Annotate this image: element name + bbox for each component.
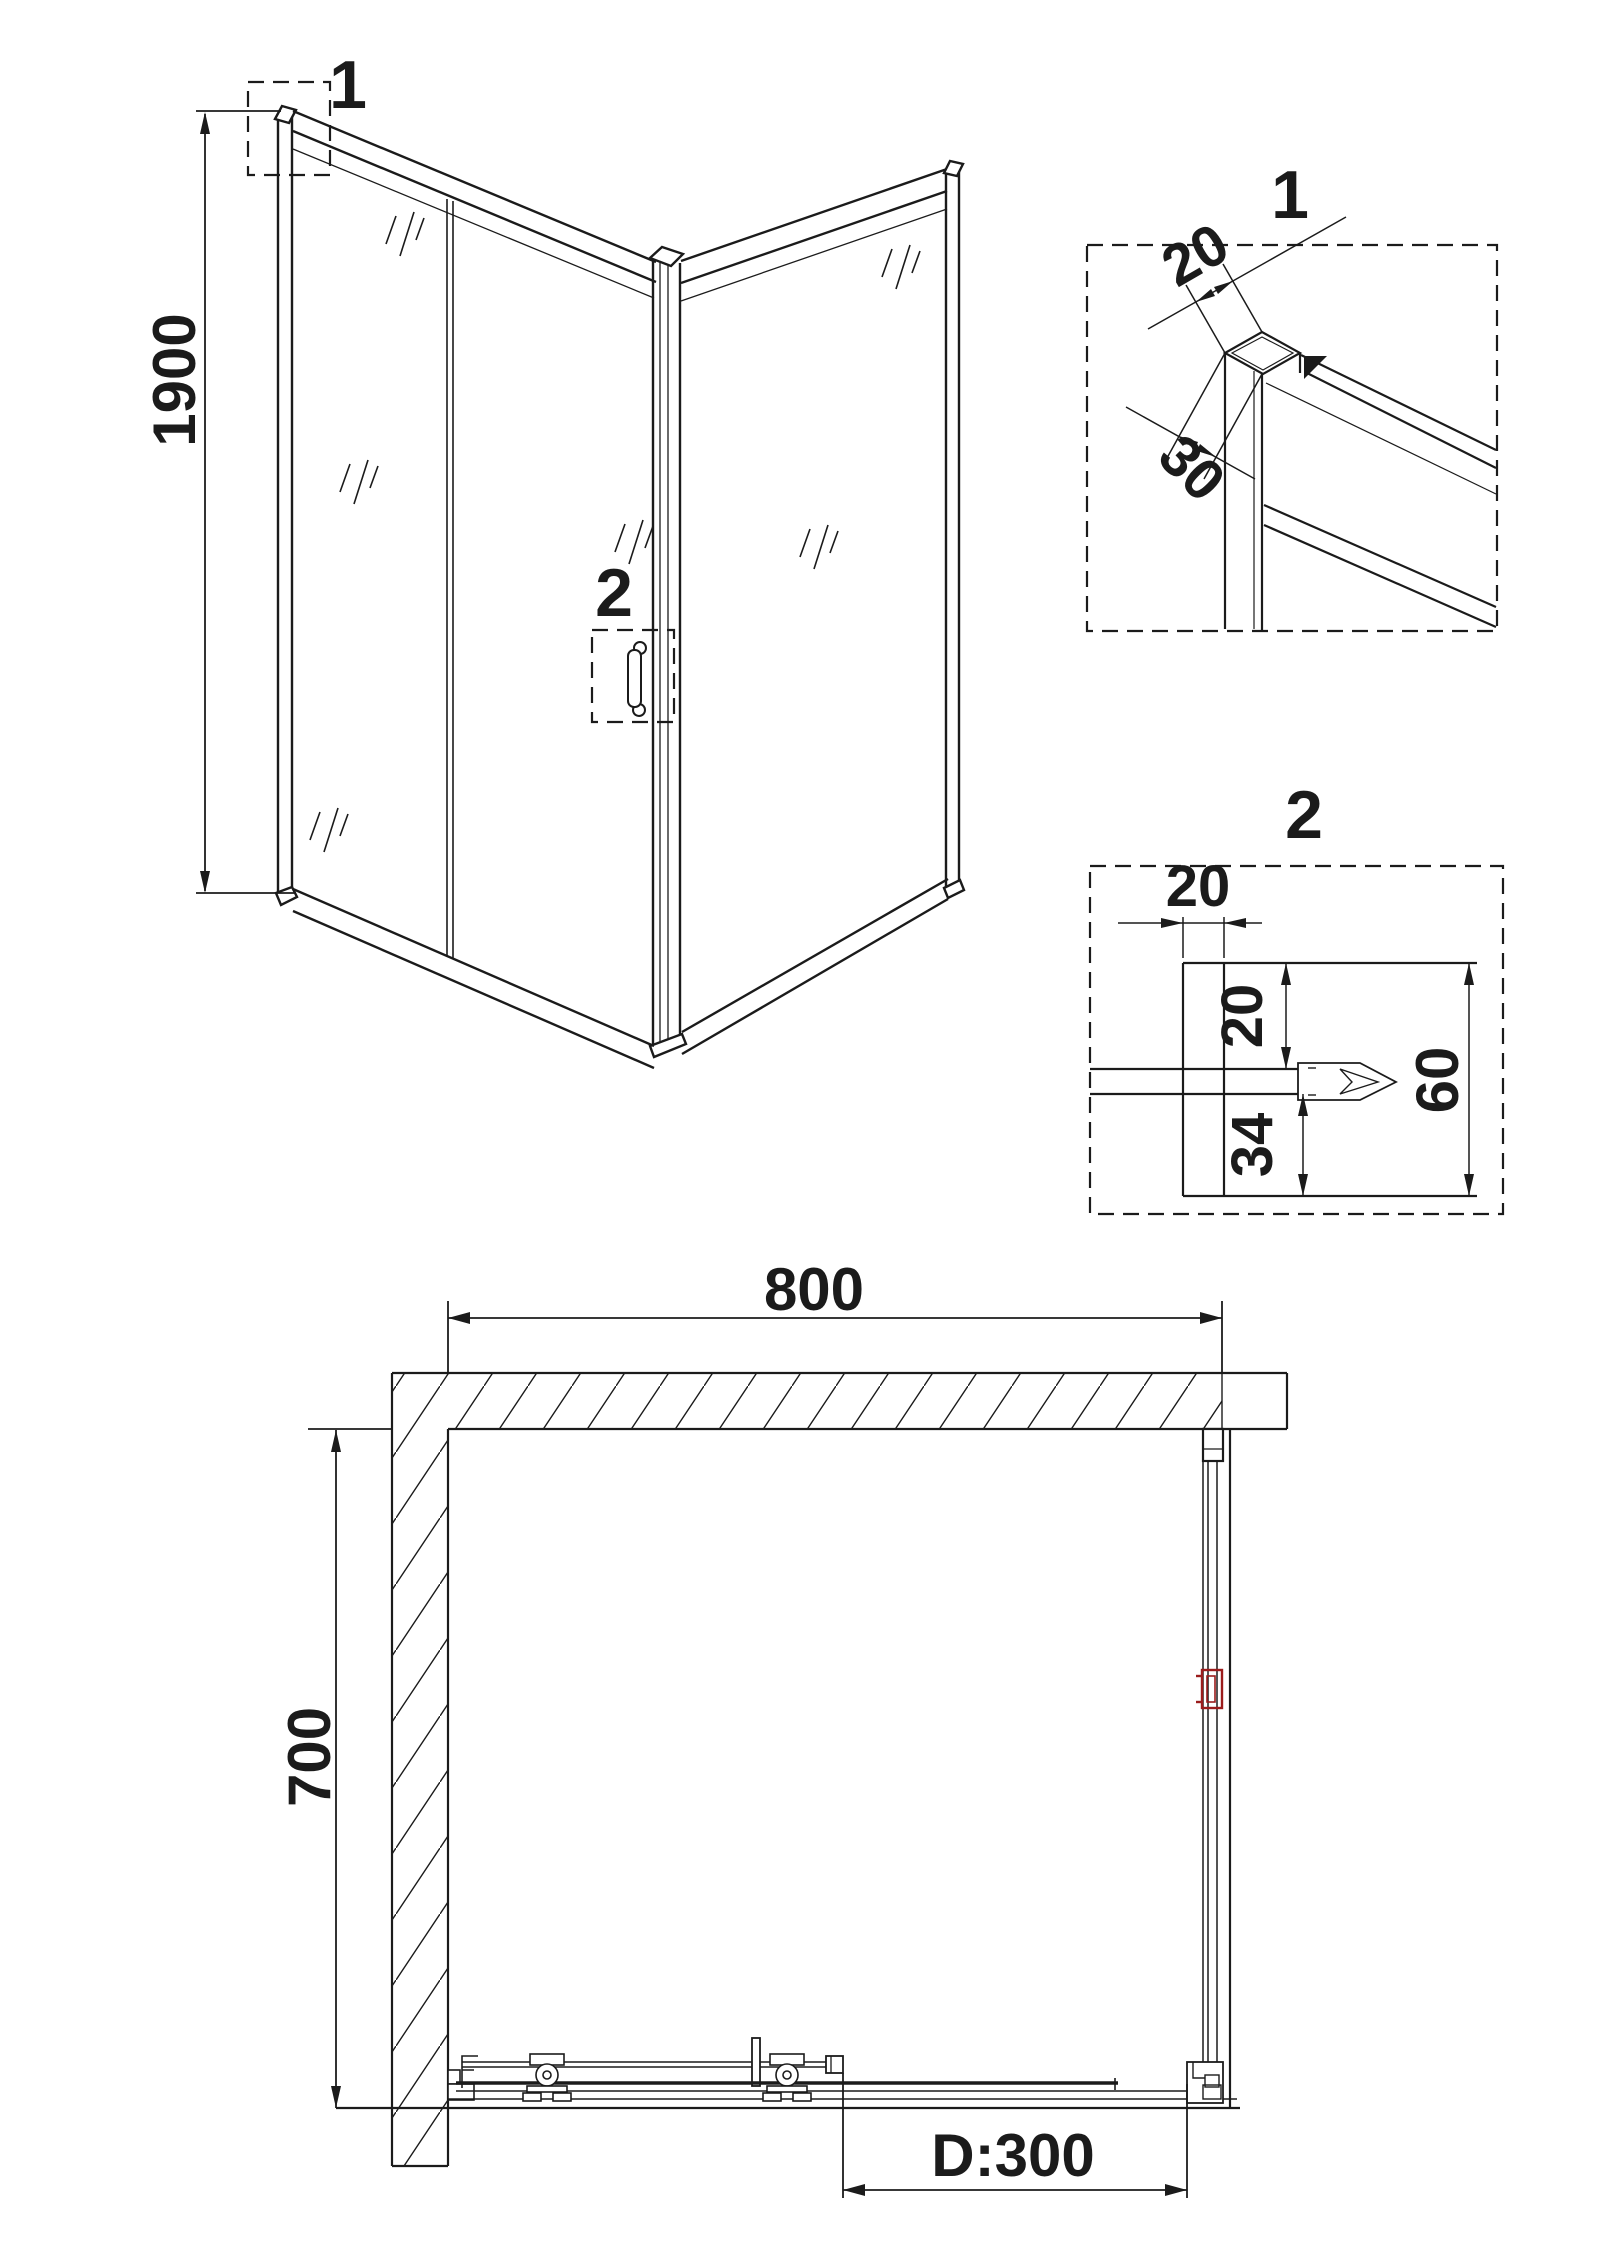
detail-2-overall-dimension: 60 xyxy=(1404,963,1474,1196)
plan-depth-dimension: 700 xyxy=(276,1429,392,2108)
iso-right-post xyxy=(944,161,964,898)
iso-front-top-rail xyxy=(293,111,656,298)
iso-left-post xyxy=(275,106,297,905)
glass-shine-marks xyxy=(310,212,920,852)
plan-depth-dimension-text: 700 xyxy=(276,1707,343,1807)
plan-wall-bracket-red xyxy=(1196,1670,1222,1708)
drawing-canvas: 1 2 1900 1 xyxy=(0,0,1600,2264)
detail-1-depth-dimension: 30 xyxy=(1126,353,1262,514)
plan-walls xyxy=(392,1373,1287,2166)
plan-view: 800 700 xyxy=(276,1256,1287,2198)
callout-2-label: 2 xyxy=(595,555,633,631)
detail-1-view: 1 20 xyxy=(1087,157,1497,631)
detail-2-upper-gap-dimension: 20 xyxy=(1210,963,1291,1069)
iso-front-bottom-rail xyxy=(293,889,654,1068)
callout-1-label: 1 xyxy=(329,47,367,123)
detail-2-view: 2 20 xyxy=(1090,777,1503,1214)
roller-carriage xyxy=(523,2054,571,2101)
iso-door-divider xyxy=(447,199,453,959)
detail-1-depth-dimension-text: 30 xyxy=(1146,422,1238,514)
detail-2-upper-gap-text: 20 xyxy=(1210,984,1275,1049)
plan-corner-bracket xyxy=(1187,2062,1223,2103)
detail-2-profile-width-text: 20 xyxy=(1166,854,1231,919)
iso-right-top-rail xyxy=(681,169,947,301)
detail-2-lower-gap-text: 34 xyxy=(1220,1113,1285,1178)
detail-1-rails xyxy=(1264,355,1496,627)
detail-2-overall-text: 60 xyxy=(1404,1047,1471,1114)
plan-width-dimension-text: 800 xyxy=(764,1256,864,1323)
roller-carriage xyxy=(763,2054,811,2101)
iso-corner-post xyxy=(650,247,686,1057)
plan-door-dimension: D:300 xyxy=(843,2073,1187,2198)
technical-drawing-page: 1 2 1900 1 xyxy=(0,0,1600,2264)
detail-2-glass-and-seal xyxy=(1090,1063,1396,1100)
door-handle xyxy=(628,642,646,716)
detail-2-profile-width-dimension: 20 xyxy=(1118,854,1262,958)
iso-height-dimension: 1900 xyxy=(141,111,296,893)
detail-2-label: 2 xyxy=(1285,777,1323,853)
plan-door-dimension-text: D:300 xyxy=(931,2122,1094,2189)
iso-right-bottom-rail xyxy=(682,879,948,1054)
detail-2-lower-gap-dimension: 34 xyxy=(1220,1094,1308,1196)
detail-1-width-dimension: 20 xyxy=(1148,211,1346,353)
plan-side-panel xyxy=(1203,1429,1230,2108)
plan-width-dimension: 800 xyxy=(448,1256,1222,1373)
detail-1-corner-tube xyxy=(1225,332,1327,631)
iso-view: 1 2 1900 xyxy=(141,47,964,1068)
iso-height-dimension-text: 1900 xyxy=(141,313,208,446)
detail-1-label: 1 xyxy=(1271,157,1309,233)
